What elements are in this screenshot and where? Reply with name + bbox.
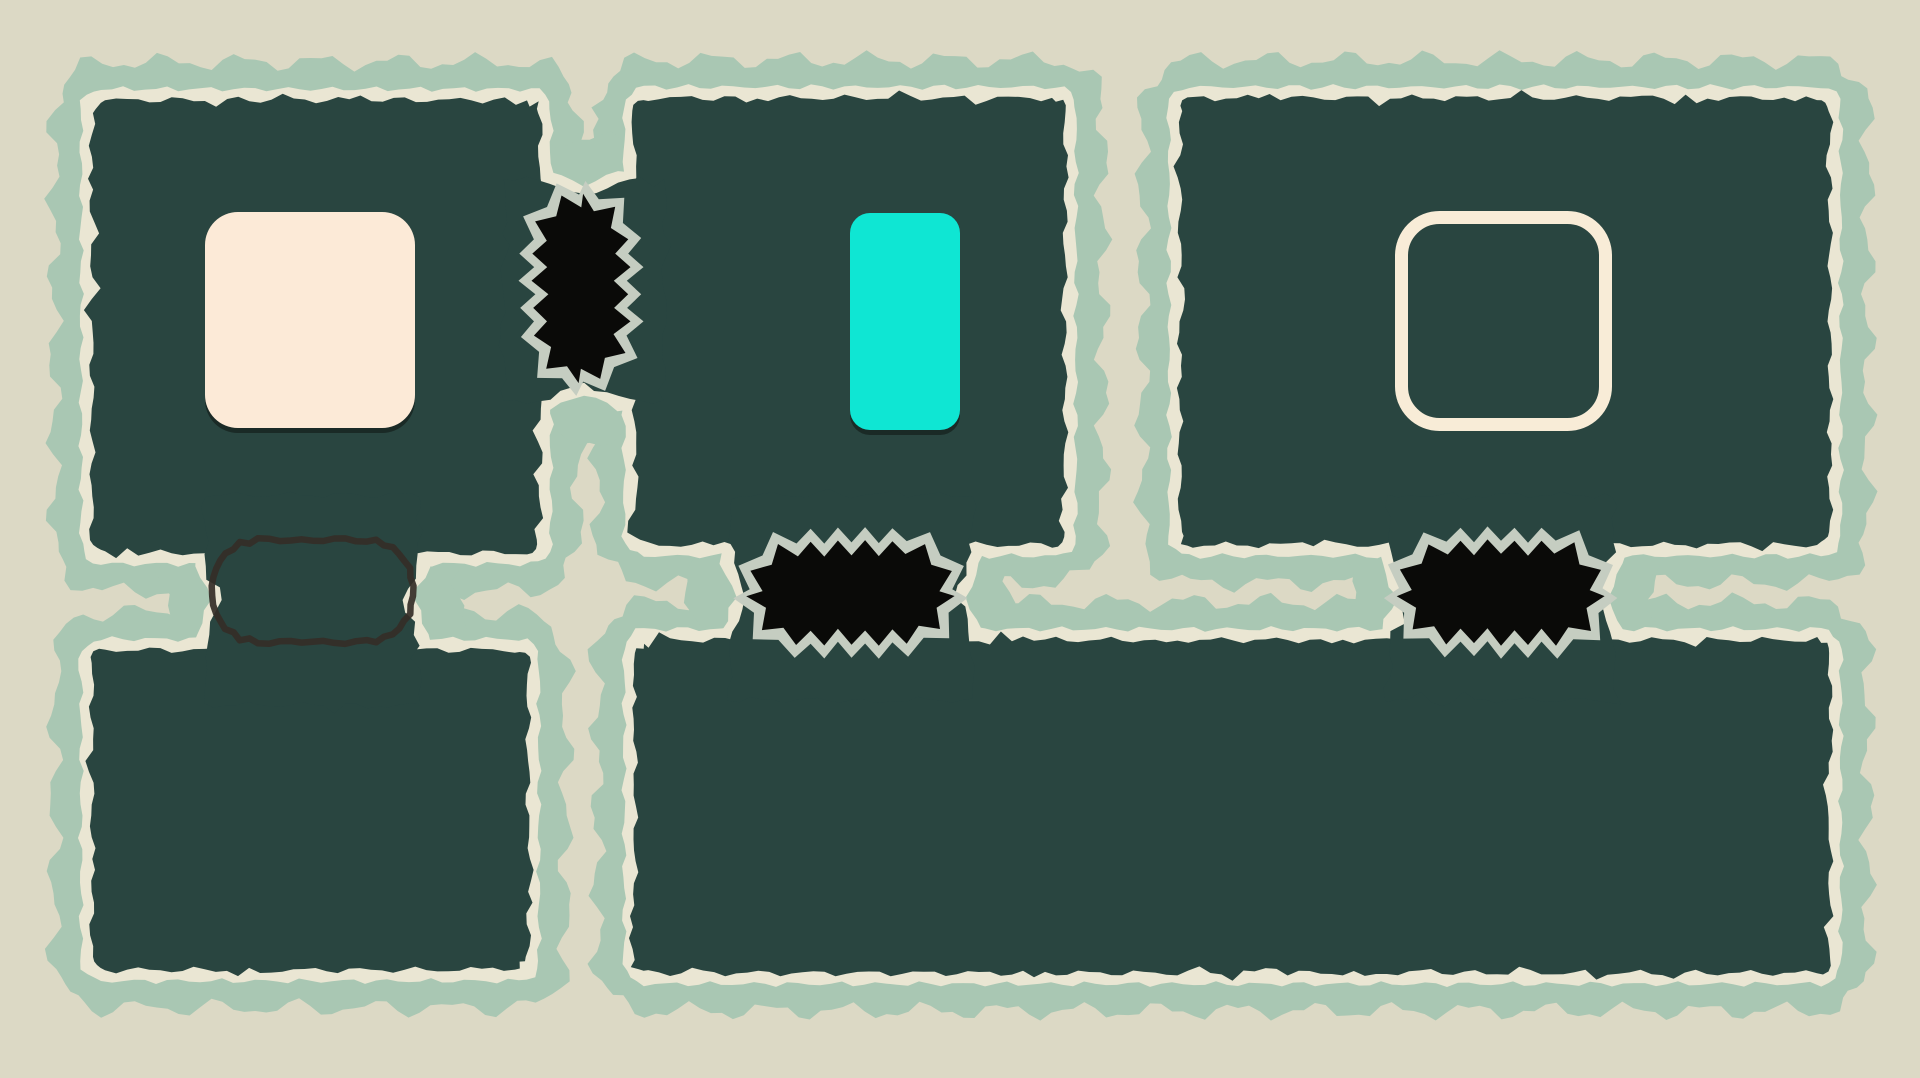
- panel-top-middle: [627, 91, 1069, 550]
- game-canvas[interactable]: [0, 0, 1920, 1078]
- bridge-ghost-link: [201, 492, 423, 714]
- cyan-box-piece[interactable]: [850, 213, 960, 430]
- panel-top-right: [1174, 90, 1834, 551]
- game-viewport: [0, 0, 1920, 1078]
- cream-box-piece[interactable]: [205, 212, 415, 428]
